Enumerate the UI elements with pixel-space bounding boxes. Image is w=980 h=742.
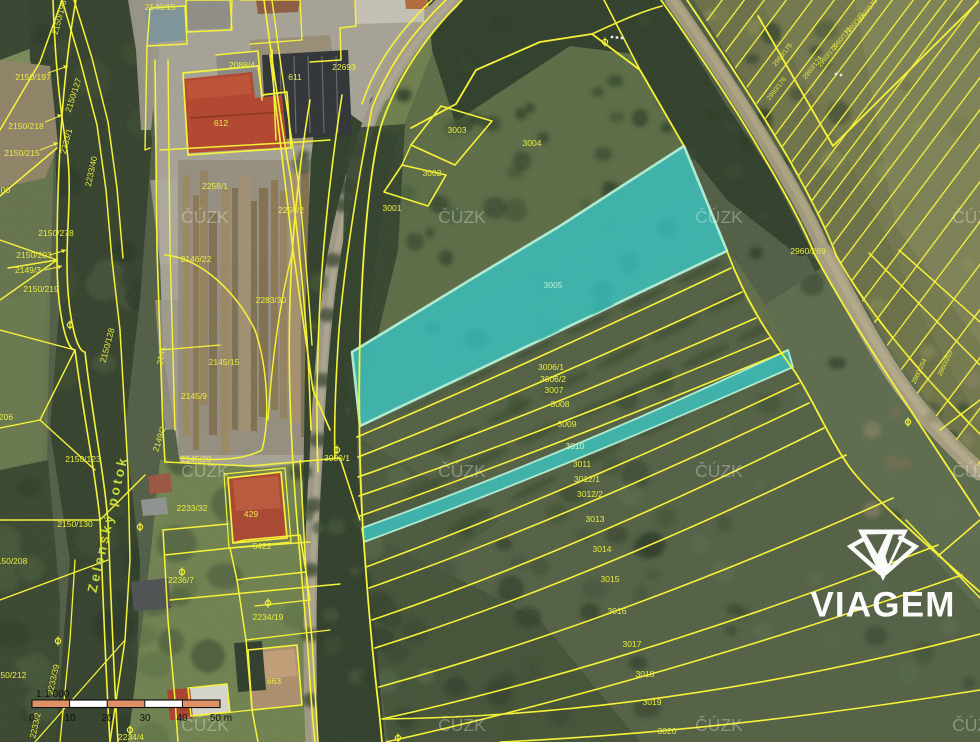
svg-text:2150/215: 2150/215 <box>4 148 40 158</box>
svg-text:3008: 3008 <box>551 399 570 409</box>
svg-text:2234/19: 2234/19 <box>253 612 284 622</box>
svg-text:30: 30 <box>139 713 151 724</box>
svg-text:3020: 3020 <box>658 726 677 736</box>
svg-text:10: 10 <box>64 713 76 724</box>
svg-text:3019: 3019 <box>643 697 662 707</box>
svg-text:40: 40 <box>176 713 188 724</box>
svg-text:2258/1: 2258/1 <box>202 181 228 191</box>
svg-text:2960/269: 2960/269 <box>790 246 826 256</box>
svg-text:200: 200 <box>0 185 10 195</box>
svg-text:612: 612 <box>214 118 228 128</box>
svg-text:2145/15: 2145/15 <box>209 357 240 367</box>
svg-text:ČÚZK: ČÚZK <box>952 714 980 735</box>
svg-text:5422: 5422 <box>253 541 272 551</box>
svg-text:2150/219: 2150/219 <box>23 284 59 294</box>
svg-text:ČÚZK: ČÚZK <box>438 714 486 735</box>
svg-text:2149/3: 2149/3 <box>15 265 41 275</box>
svg-text:0: 0 <box>29 713 35 724</box>
svg-text:ČÚZK: ČÚZK <box>952 206 980 227</box>
svg-text:1:1 000: 1:1 000 <box>36 689 70 700</box>
svg-text:3013: 3013 <box>586 514 605 524</box>
svg-text:ČÚZK: ČÚZK <box>695 714 743 735</box>
svg-text:3001: 3001 <box>383 203 402 213</box>
svg-text:22693: 22693 <box>332 62 356 72</box>
svg-text:3018: 3018 <box>636 669 655 679</box>
svg-text:ČÚZK: ČÚZK <box>438 460 486 481</box>
svg-text:429: 429 <box>244 509 258 519</box>
svg-text:2283/30: 2283/30 <box>256 295 287 305</box>
svg-text:150/212: 150/212 <box>0 670 27 680</box>
svg-text:2088/4: 2088/4 <box>229 60 255 70</box>
svg-text:611: 611 <box>288 72 302 82</box>
svg-text:2150/278: 2150/278 <box>38 228 74 238</box>
svg-text:3012/2: 3012/2 <box>577 489 603 499</box>
svg-text:50 m: 50 m <box>210 713 232 724</box>
svg-text:3017: 3017 <box>623 639 642 649</box>
svg-text:3009: 3009 <box>558 419 577 429</box>
svg-text:2150/197: 2150/197 <box>15 72 51 82</box>
svg-text:2146/22: 2146/22 <box>181 254 212 264</box>
svg-text:3006/1: 3006/1 <box>538 362 564 372</box>
svg-text:150/208: 150/208 <box>0 556 28 566</box>
svg-text:3003: 3003 <box>448 125 467 135</box>
svg-text:ČÚZK: ČÚZK <box>438 206 486 227</box>
svg-text:ČÚZK: ČÚZK <box>952 460 980 481</box>
svg-text:2234/4: 2234/4 <box>118 732 144 742</box>
svg-text:2150/123: 2150/123 <box>65 454 101 464</box>
svg-text:3014: 3014 <box>593 544 612 554</box>
svg-text:2258/2: 2258/2 <box>278 205 304 215</box>
svg-text:3010: 3010 <box>566 441 585 451</box>
svg-text:3005: 3005 <box>544 280 563 290</box>
svg-text:3011: 3011 <box>573 459 592 469</box>
svg-text:663: 663 <box>267 676 281 686</box>
svg-text:3002: 3002 <box>423 168 442 178</box>
svg-text:2233/32: 2233/32 <box>177 503 208 513</box>
svg-text:206: 206 <box>0 412 13 422</box>
svg-text:2150/203: 2150/203 <box>16 250 52 260</box>
svg-text:ČÚZK: ČÚZK <box>181 206 229 227</box>
svg-text:3016: 3016 <box>608 606 627 616</box>
svg-text:2150/130: 2150/130 <box>57 519 93 529</box>
svg-text:VIAGEM: VIAGEM <box>810 586 955 625</box>
svg-text:3015: 3015 <box>601 574 620 584</box>
svg-text:3012/1: 3012/1 <box>574 474 600 484</box>
svg-text:2150/218: 2150/218 <box>8 121 44 131</box>
svg-text:2236/7: 2236/7 <box>168 575 194 585</box>
svg-text:3004: 3004 <box>523 138 542 148</box>
svg-text:2146/15: 2146/15 <box>145 2 176 12</box>
svg-text:3006/2: 3006/2 <box>540 374 566 384</box>
svg-text:ČÚZK: ČÚZK <box>181 460 229 481</box>
svg-text:3007: 3007 <box>545 385 564 395</box>
svg-text:ČÚZK: ČÚZK <box>695 460 743 481</box>
svg-text:2145/9: 2145/9 <box>181 391 207 401</box>
svg-text:20: 20 <box>101 713 113 724</box>
svg-text:ČÚZK: ČÚZK <box>695 206 743 227</box>
